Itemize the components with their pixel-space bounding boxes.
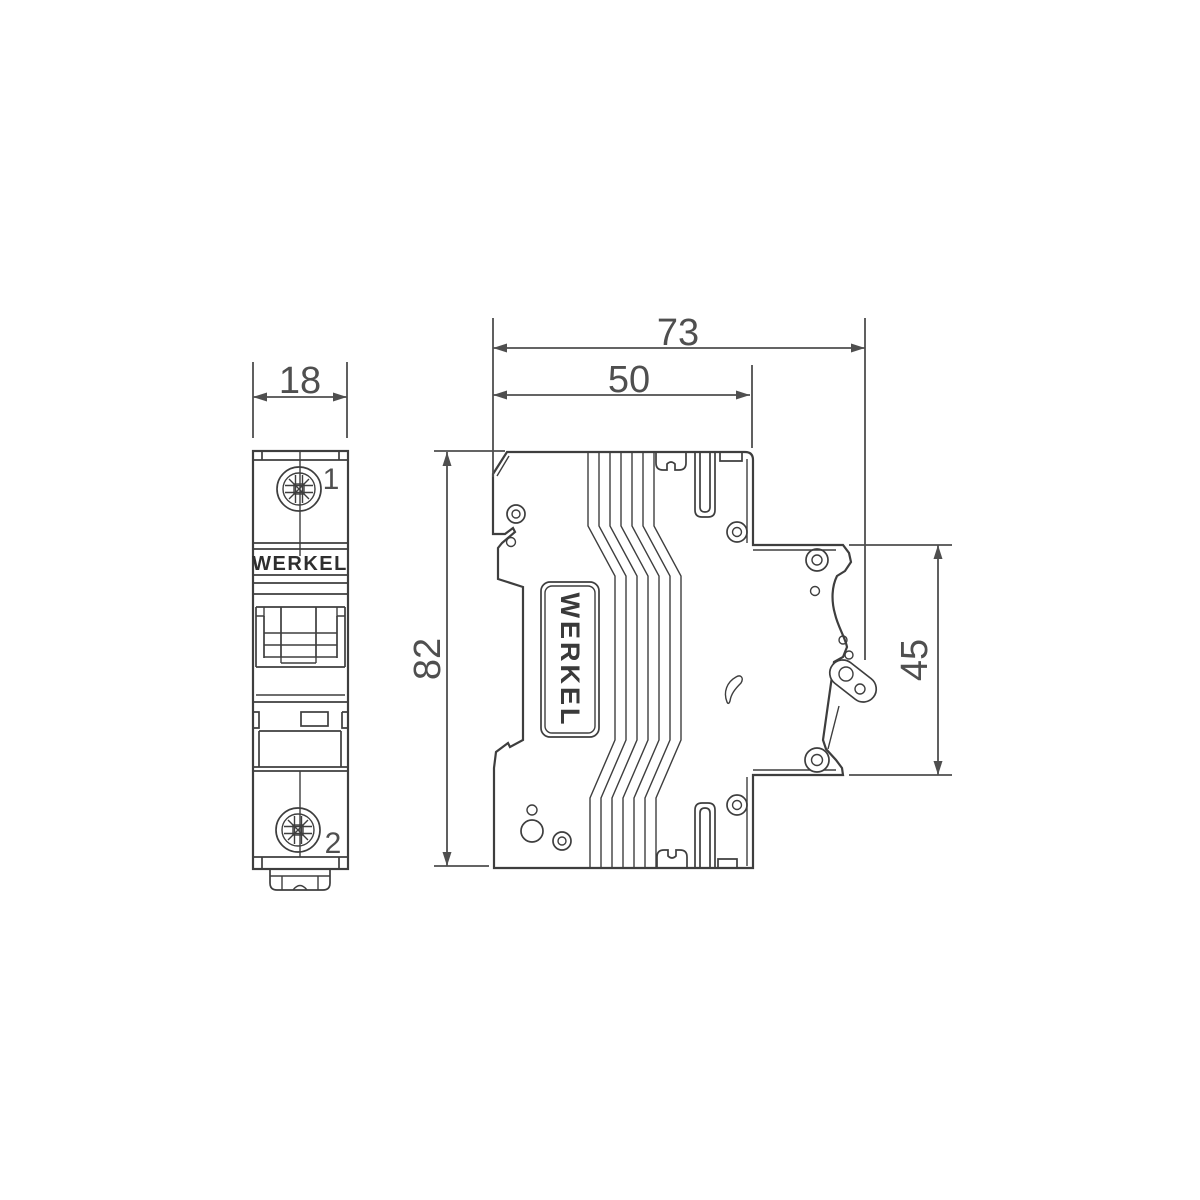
- bottom-notch: [657, 850, 687, 868]
- front-brand-label: WERKEL: [252, 553, 348, 575]
- edge-tabs: [718, 452, 742, 868]
- screw-terminal-1: [277, 467, 321, 511]
- marking-window: [301, 712, 328, 726]
- dimension-total-depth: 73: [493, 312, 865, 660]
- side-brand-plate: WERKEL: [541, 582, 599, 737]
- technical-drawing: 1 WERKEL 2: [0, 0, 1200, 1200]
- toggle-switch: [256, 607, 345, 667]
- canvas: 1 WERKEL 2: [0, 0, 1200, 1200]
- front-view: 1 WERKEL 2: [252, 451, 348, 890]
- terminal-2-label: 2: [325, 827, 342, 860]
- dimension-body-depth-value: 50: [608, 359, 650, 401]
- terminal-1-label: 1: [323, 463, 340, 496]
- side-inner-walls: [497, 456, 836, 866]
- mold-mark: [725, 676, 742, 703]
- side-view: WERKEL: [493, 452, 881, 868]
- dimension-front-width-value: 18: [279, 360, 321, 402]
- dimension-height-value: 82: [407, 638, 449, 680]
- top-notch: [656, 452, 686, 470]
- dimension-body-depth: 50: [493, 359, 752, 448]
- screw-terminal-2: [276, 808, 320, 852]
- lever-pivot: [805, 748, 829, 772]
- dimension-height: 82: [407, 451, 505, 866]
- side-body-outline: [493, 452, 851, 868]
- dimension-front-width: 18: [253, 360, 347, 438]
- dimension-front-section-height-value: 45: [894, 639, 936, 681]
- mounting-slot-bottom: [695, 803, 715, 868]
- mounting-slot-top: [695, 452, 715, 517]
- marking-window-band: [253, 712, 348, 771]
- molding-lines: [588, 452, 681, 868]
- din-clip-foot: [270, 869, 330, 890]
- side-brand-label: WERKEL: [555, 593, 585, 728]
- dimension-total-depth-value: 73: [657, 312, 699, 354]
- toggle-lever: [805, 655, 881, 772]
